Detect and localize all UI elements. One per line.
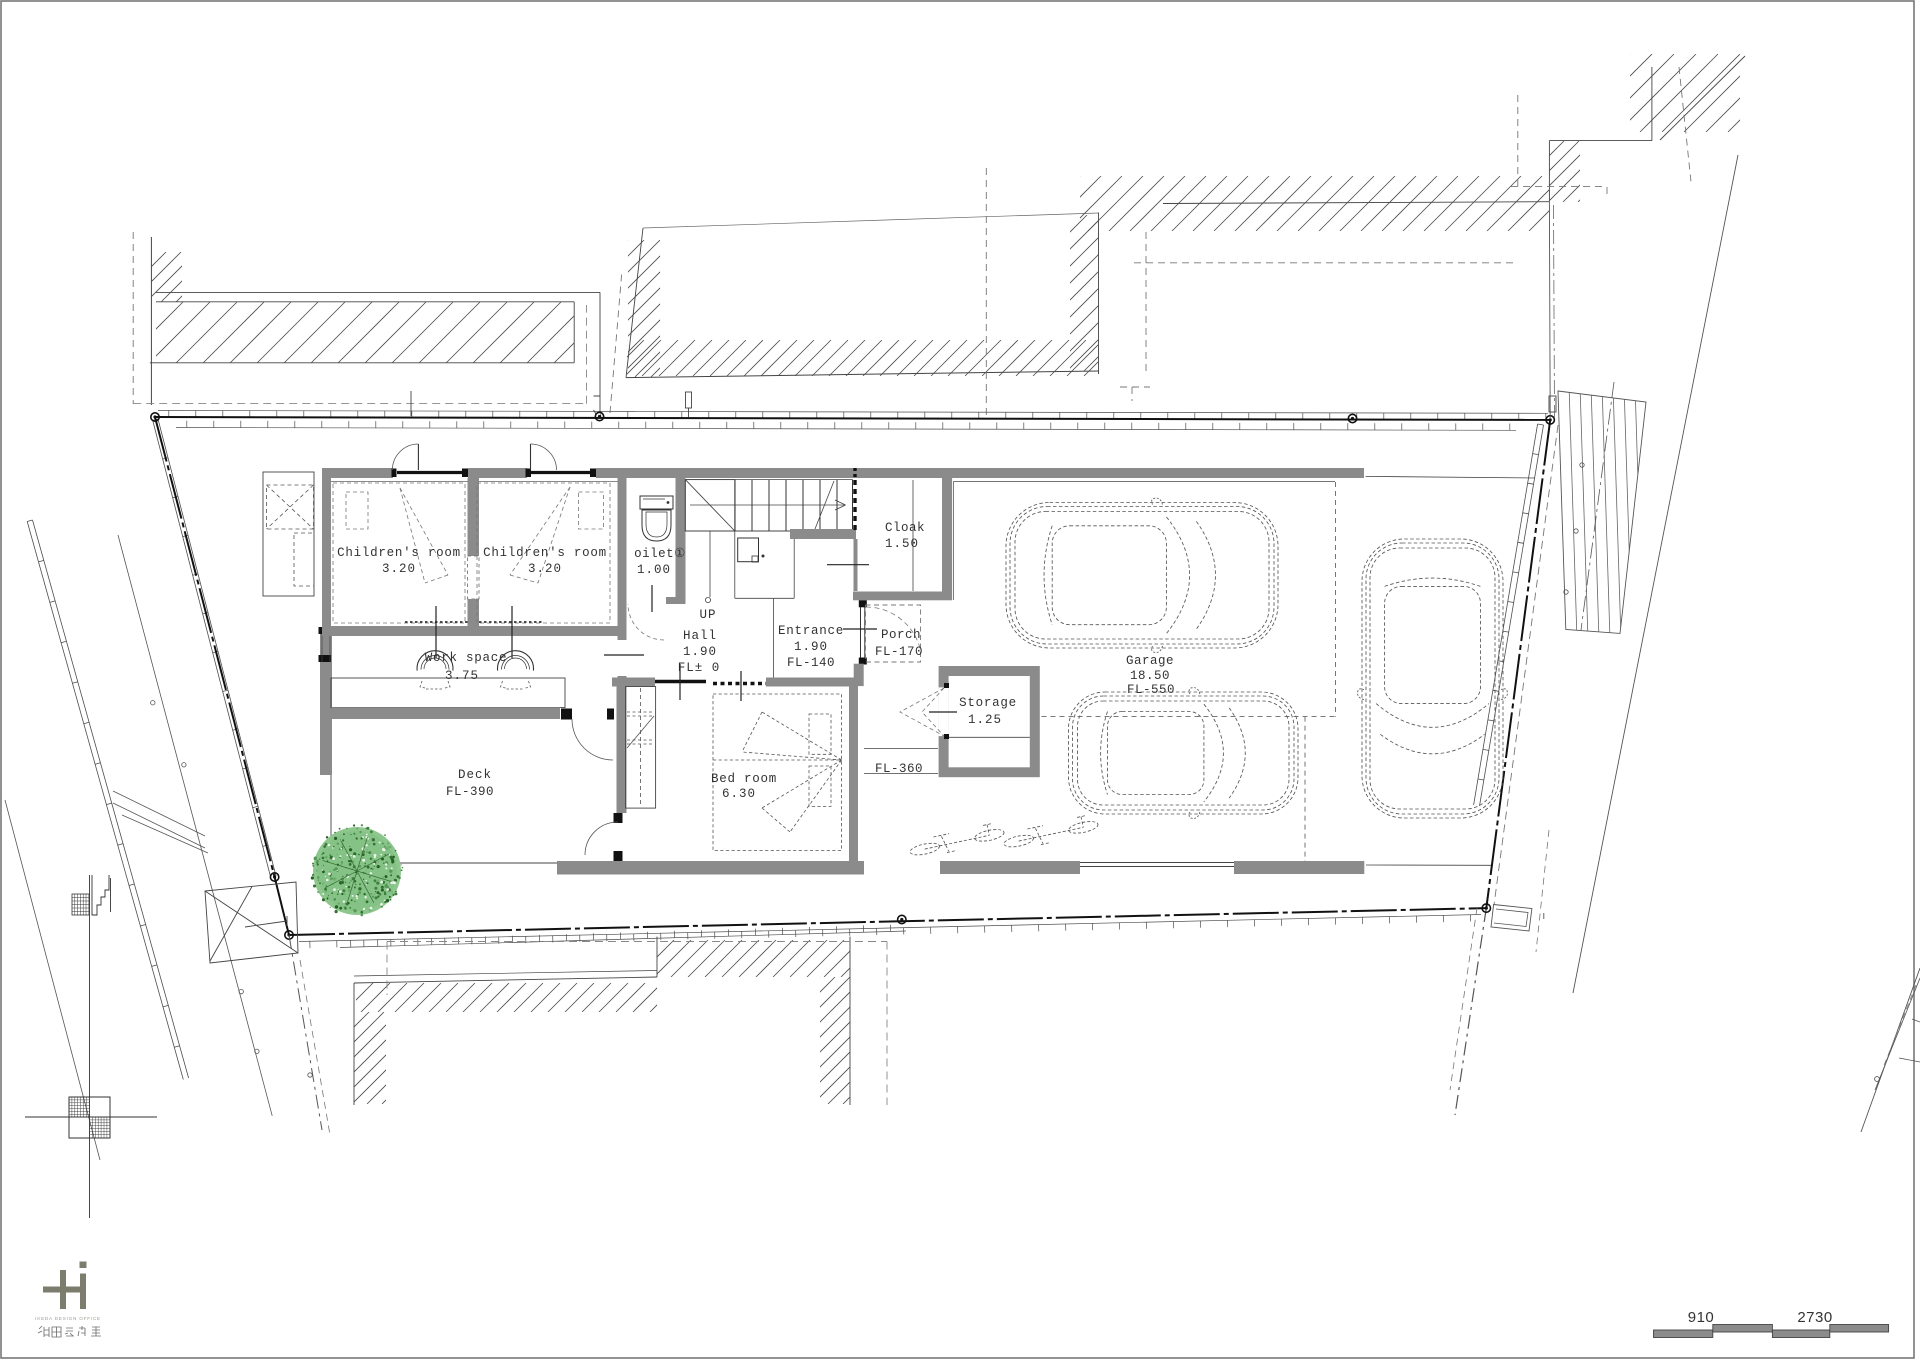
svg-text:18.50: 18.50: [1130, 669, 1170, 683]
svg-text:FL-360: FL-360: [875, 762, 923, 776]
svg-text:FL-550: FL-550: [1127, 683, 1175, 697]
svg-text:FL-170: FL-170: [875, 645, 923, 659]
svg-text:FL-140: FL-140: [787, 656, 835, 670]
svg-text:3.20: 3.20: [382, 562, 416, 576]
svg-text:Cloak: Cloak: [885, 521, 925, 535]
svg-text:Work space: Work space: [425, 651, 508, 665]
svg-text:1.00: 1.00: [637, 563, 671, 577]
svg-text:FL± 0: FL± 0: [678, 661, 721, 675]
svg-text:1.90: 1.90: [794, 640, 828, 654]
svg-text:Entrance: Entrance: [778, 624, 844, 638]
svg-text:Deck: Deck: [458, 768, 492, 782]
svg-text:6.30: 6.30: [722, 787, 756, 801]
svg-text:IKEDA DESIGN OFFICE: IKEDA DESIGN OFFICE: [35, 1316, 101, 1321]
svg-text:910: 910: [1688, 1309, 1715, 1326]
svg-text:Children's room: Children's room: [483, 546, 607, 560]
svg-text:2730: 2730: [1797, 1309, 1832, 1326]
svg-text:Children's room: Children's room: [337, 546, 461, 560]
svg-text:3.20: 3.20: [528, 562, 562, 576]
svg-text:UP: UP: [699, 608, 716, 622]
svg-text:FL-390: FL-390: [446, 785, 494, 799]
svg-text:3.75: 3.75: [445, 669, 479, 683]
svg-text:Garage: Garage: [1126, 654, 1174, 668]
svg-text:1.50: 1.50: [885, 537, 919, 551]
svg-text:Storage: Storage: [959, 696, 1017, 710]
svg-text:1.90: 1.90: [683, 645, 717, 659]
svg-text:Hall: Hall: [683, 629, 717, 643]
svg-text:1.25: 1.25: [968, 713, 1002, 727]
svg-text:Bed room: Bed room: [711, 772, 777, 786]
svg-text:Porch: Porch: [881, 628, 921, 642]
svg-text:oilet①: oilet①: [634, 547, 686, 561]
